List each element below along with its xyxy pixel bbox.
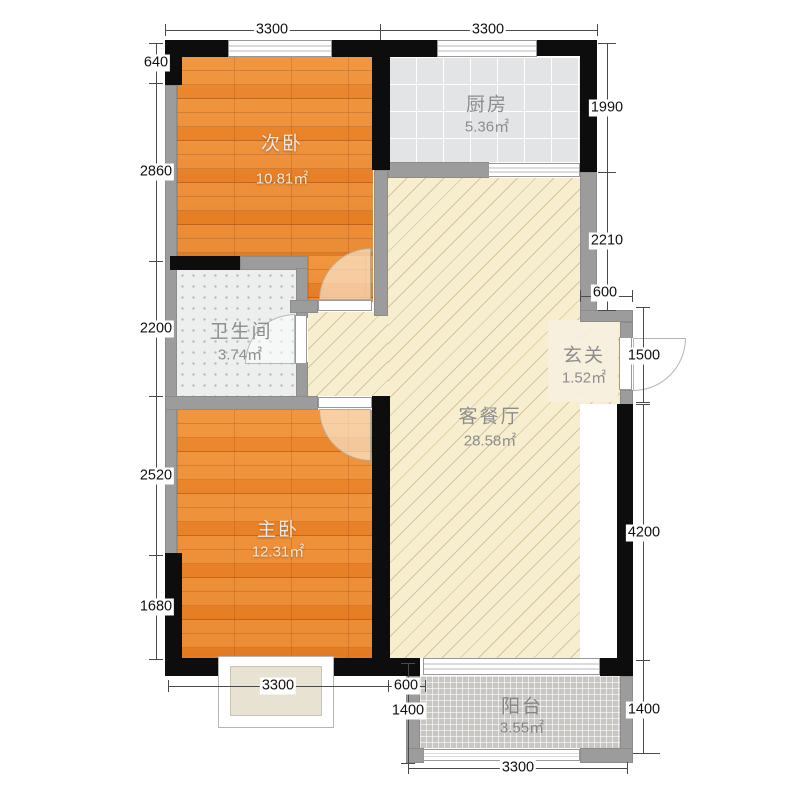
balcony-area: 3.55㎡ (500, 717, 544, 738)
bathroom-area: 3.74㎡ (218, 344, 262, 365)
dim-tick (598, 43, 616, 44)
wall-bottom-left (165, 658, 222, 676)
dim-tick (149, 659, 163, 660)
bathroom-door (295, 315, 307, 364)
floor-secondary-bedroom (177, 57, 373, 257)
wall-entry-right-upper (620, 322, 633, 338)
dim-line-bottom (168, 686, 425, 687)
entry-label: 玄关 (563, 341, 605, 368)
dim-tick (401, 663, 415, 664)
dim-bottom-600: 600 (392, 678, 420, 695)
balcony-sliding-door (423, 658, 600, 675)
wall-entry-right-lower (620, 390, 633, 405)
dim-right-1990: 1990 (589, 100, 625, 117)
dim-tick (149, 261, 163, 262)
dim-line-right-upper (607, 43, 608, 310)
wall-middle-vertical-upper (372, 40, 390, 170)
wall-balcony-bottom-right (580, 748, 633, 763)
dim-left-1680: 1680 (138, 599, 174, 616)
dim-tick (388, 680, 389, 692)
dim-line-top (165, 30, 597, 31)
dim-tick (598, 172, 616, 173)
kitchen-window (437, 40, 537, 57)
dim-tick (149, 43, 163, 44)
secondary-bedroom-door (318, 300, 372, 311)
dim-left-2860: 2860 (138, 164, 174, 181)
master-bedroom-label: 主卧 (257, 515, 299, 542)
dim-right-2210: 2210 (589, 233, 625, 250)
dim-left-640: 640 (142, 55, 170, 72)
master-bedroom-door (318, 397, 372, 408)
dim-tick (636, 402, 650, 403)
floor-plan: 3300 3300 640 2860 2200 2520 1680 1990 2… (0, 0, 800, 800)
wall-bedroom-living (374, 170, 388, 316)
bathroom-label: 卫生间 (209, 317, 272, 344)
secondary-bedroom-area: 10.81㎡ (256, 168, 309, 189)
dim-top-kitchen: 3300 (470, 22, 506, 39)
entry-area: 1.52㎡ (562, 367, 606, 388)
master-bedroom-area: 12.31㎡ (252, 541, 305, 562)
dim-tick (408, 762, 409, 774)
wall-entry-jut-top (580, 310, 633, 322)
wall-master-top (165, 396, 318, 410)
wall-balcony-corner (600, 658, 633, 676)
living-dining-label: 客餐厅 (458, 402, 521, 429)
wall-bedroom-door-stub (290, 300, 318, 313)
dim-tick (633, 753, 660, 754)
dim-balcony-3300: 3300 (500, 760, 536, 777)
dim-tick (636, 307, 650, 308)
dim-tick (168, 680, 169, 692)
kitchen-label: 厨房 (466, 90, 508, 117)
balcony-label: 阳台 (501, 692, 543, 719)
living-dining-area: 28.58㎡ (464, 430, 517, 451)
dim-tick (165, 24, 166, 36)
dim-tick (627, 762, 628, 774)
kitchen-area: 5.36㎡ (465, 116, 509, 137)
wall-bottom-middle (332, 658, 420, 676)
dim-tick (149, 396, 163, 397)
dim-left-2520: 2520 (138, 468, 174, 485)
floor-corridor (308, 312, 388, 396)
dim-balcony-1400: 1400 (390, 703, 426, 720)
dim-tick (632, 290, 633, 302)
kitchen-sliding-door (488, 163, 580, 177)
dim-bottom-3300: 3300 (260, 678, 296, 695)
dim-right-1400: 1400 (626, 702, 662, 719)
dim-entry-600: 600 (591, 285, 619, 302)
dim-top-bedroom: 3300 (254, 22, 290, 39)
dim-tick (597, 24, 598, 36)
dim-tick (149, 83, 163, 84)
dim-tick (636, 404, 650, 405)
dim-tick (380, 24, 381, 40)
dim-entry-1500: 1500 (626, 348, 662, 365)
wall-kitchen-bottom (388, 162, 489, 178)
dim-left-2200: 2200 (138, 321, 174, 338)
wall-bathroom-right-lower (296, 362, 308, 398)
dim-tick (598, 310, 616, 311)
dim-right-4200: 4200 (626, 525, 662, 542)
entry-door-arc (633, 338, 686, 391)
dim-line-left (156, 43, 157, 659)
dim-tick (149, 555, 163, 556)
dim-tick (425, 680, 426, 692)
secondary-bedroom-label: 次卧 (261, 129, 303, 156)
wall-bathroom-top (170, 256, 240, 270)
dim-tick (580, 290, 581, 302)
wall-middle-vertical-lower (372, 396, 390, 660)
secondary-bedroom-window (228, 40, 332, 57)
